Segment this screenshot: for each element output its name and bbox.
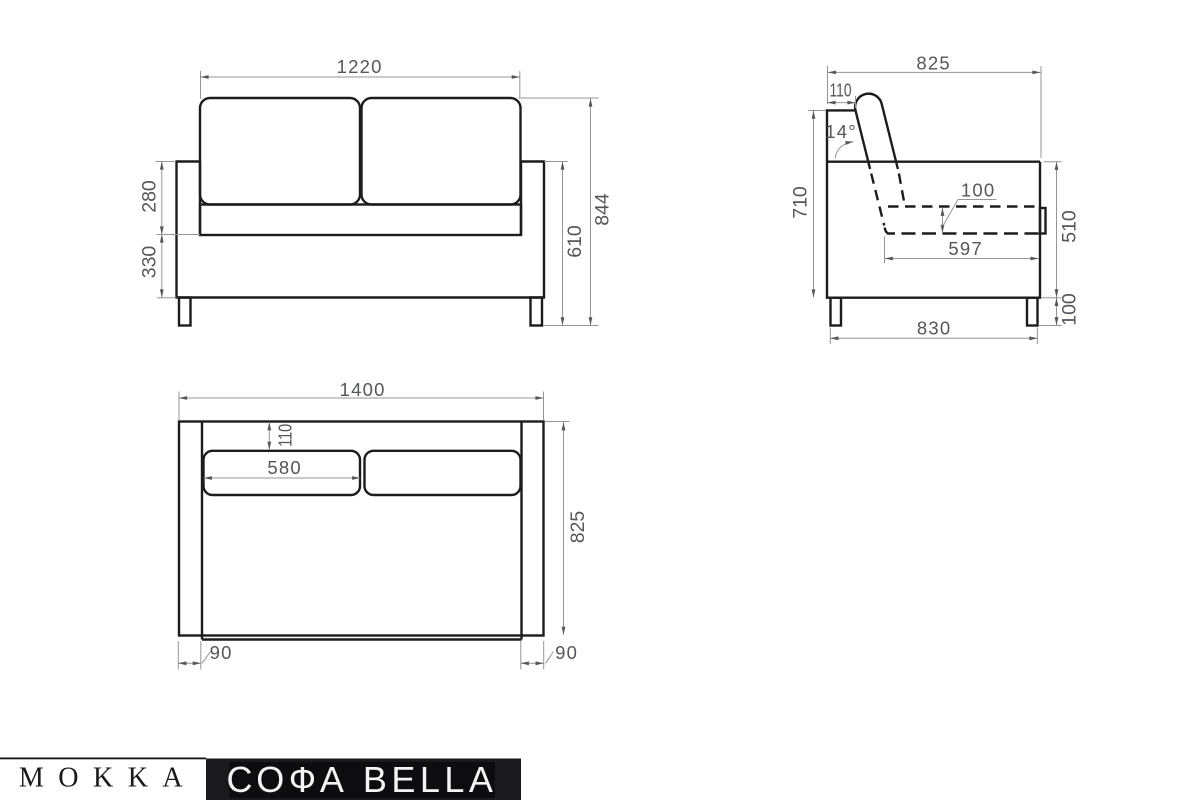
svg-text:610: 610 — [564, 225, 586, 258]
svg-text:510: 510 — [1059, 210, 1081, 243]
svg-text:СОФА BELLA: СОФА BELLA — [227, 759, 498, 800]
svg-text:110: 110 — [274, 424, 295, 447]
svg-text:110: 110 — [830, 80, 852, 101]
svg-text:90: 90 — [555, 642, 578, 663]
svg-text:825: 825 — [916, 53, 950, 74]
svg-text:597: 597 — [948, 238, 982, 259]
svg-text:1400: 1400 — [340, 379, 386, 400]
svg-text:1220: 1220 — [337, 56, 383, 77]
svg-text:330: 330 — [139, 246, 161, 279]
svg-text:280: 280 — [139, 180, 161, 213]
svg-text:825: 825 — [567, 511, 589, 544]
svg-text:100: 100 — [1059, 293, 1081, 326]
svg-text:844: 844 — [592, 193, 614, 226]
svg-text:100: 100 — [961, 180, 995, 201]
svg-text:710: 710 — [790, 186, 812, 219]
svg-text:830: 830 — [917, 318, 951, 339]
svg-text:580: 580 — [267, 457, 301, 478]
svg-text:14°: 14° — [825, 121, 857, 142]
svg-text:90: 90 — [210, 642, 233, 663]
svg-text:MOKKA: MOKKA — [19, 762, 197, 793]
